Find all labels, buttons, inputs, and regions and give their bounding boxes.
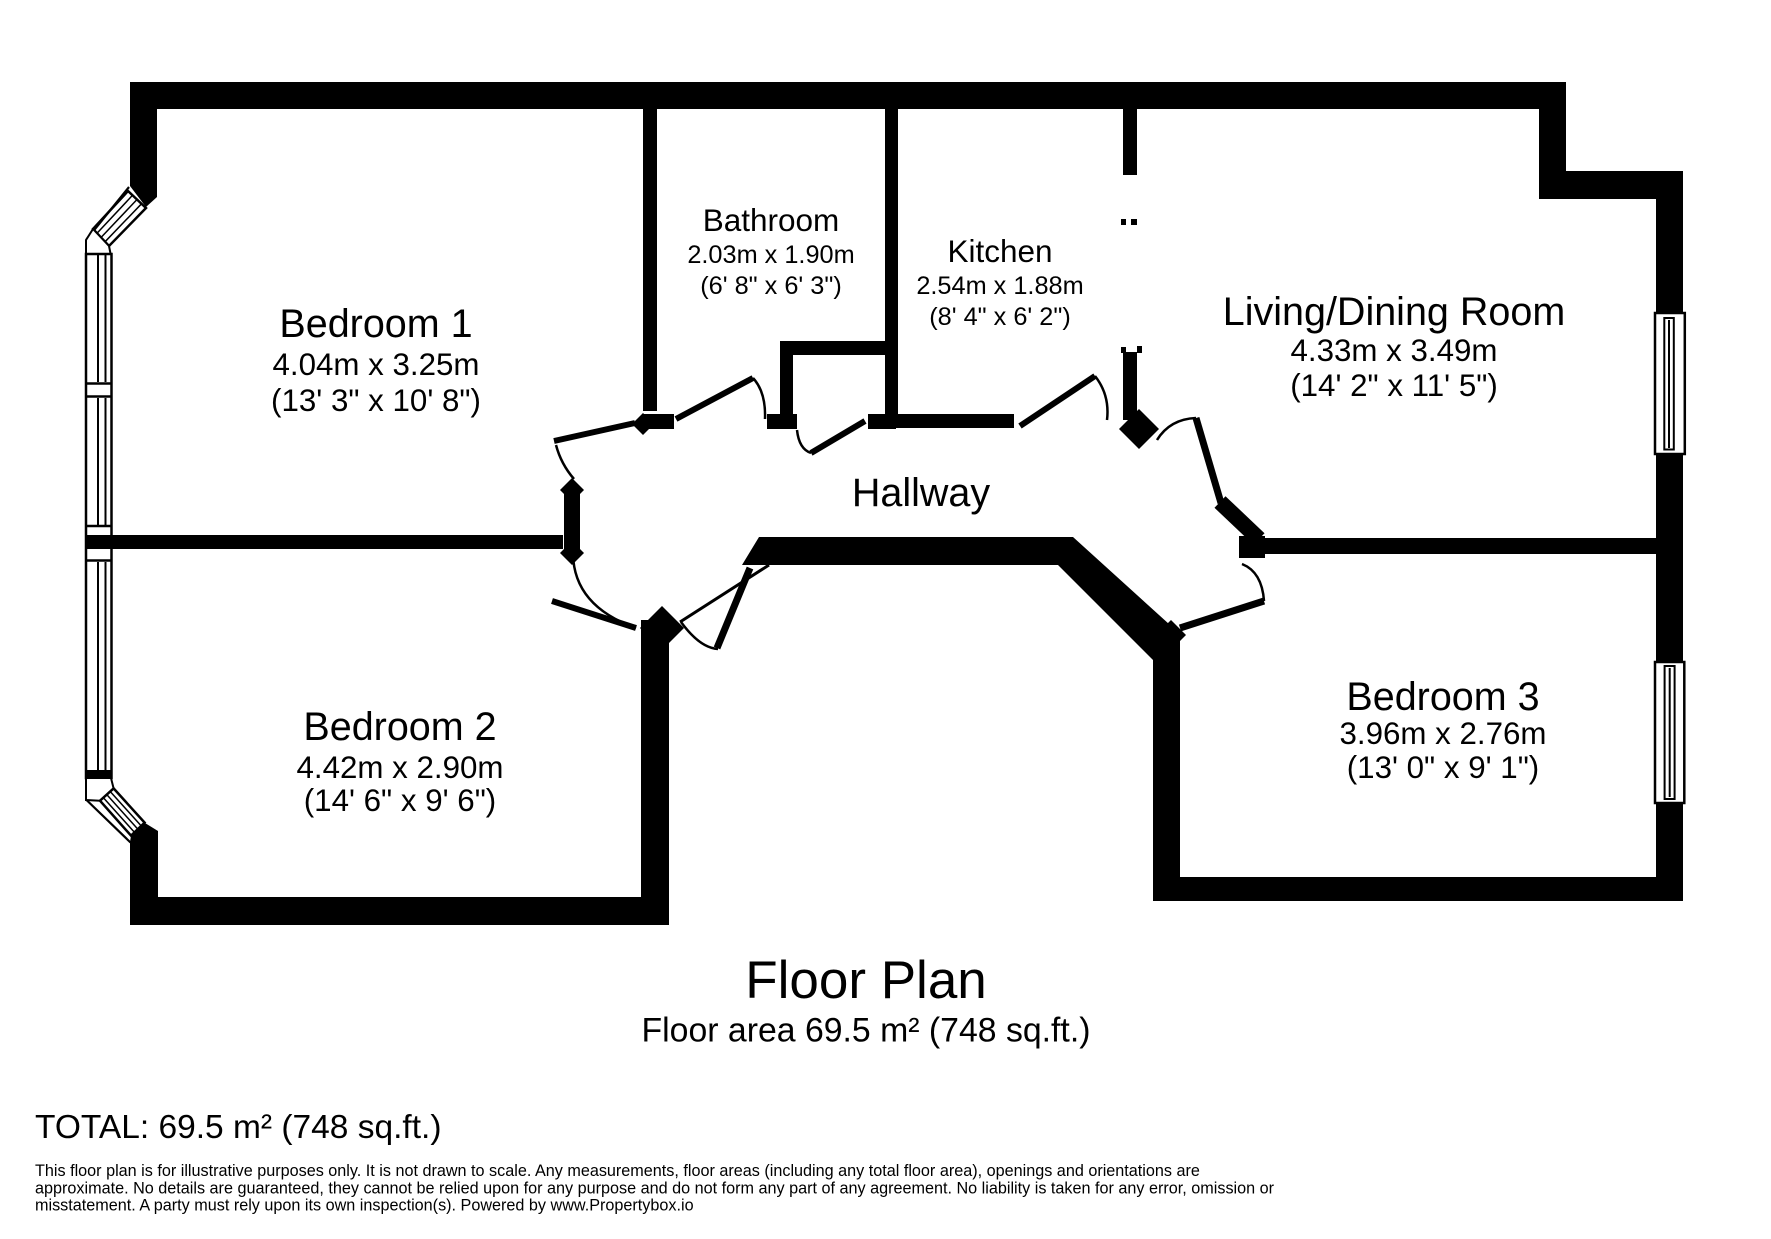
svg-text:4.42m x 2.90m: 4.42m x 2.90m <box>296 750 503 785</box>
svg-text:(14' 6" x 9' 6"): (14' 6" x 9' 6") <box>304 783 496 818</box>
svg-text:(13' 0" x 9' 1"): (13' 0" x 9' 1") <box>1347 750 1539 785</box>
svg-text:2.54m x 1.88m: 2.54m x 1.88m <box>916 272 1083 300</box>
svg-text:Hallway: Hallway <box>852 471 991 515</box>
svg-text:TOTAL: 69.5 m² (748 sq.ft.): TOTAL: 69.5 m² (748 sq.ft.) <box>35 1109 441 1146</box>
svg-text:(8' 4" x 6' 2"): (8' 4" x 6' 2") <box>929 303 1071 331</box>
svg-text:Floor area 69.5 m² (748 sq.ft.: Floor area 69.5 m² (748 sq.ft.) <box>642 1012 1091 1050</box>
svg-text:Bedroom 2: Bedroom 2 <box>303 705 496 749</box>
svg-text:Kitchen: Kitchen <box>947 233 1052 269</box>
svg-text:4.33m x 3.49m: 4.33m x 3.49m <box>1290 333 1497 368</box>
svg-text:2.03m x 1.90m: 2.03m x 1.90m <box>687 241 854 269</box>
svg-text:(6' 8" x 6' 3"): (6' 8" x 6' 3") <box>700 272 842 300</box>
svg-text:Floor Plan: Floor Plan <box>745 951 987 1010</box>
svg-text:Bedroom 1: Bedroom 1 <box>279 302 472 346</box>
svg-text:Bathroom: Bathroom <box>703 202 840 238</box>
svg-text:(13' 3" x 10' 8"): (13' 3" x 10' 8") <box>271 383 481 418</box>
svg-text:Bedroom 3: Bedroom 3 <box>1346 675 1539 719</box>
svg-text:approximate. No details are gu: approximate. No details are guaranteed, … <box>35 1179 1275 1197</box>
svg-text:Living/Dining Room: Living/Dining Room <box>1223 290 1566 334</box>
svg-text:4.04m x 3.25m: 4.04m x 3.25m <box>272 347 479 382</box>
svg-text:(14' 2" x 11' 5"): (14' 2" x 11' 5") <box>1290 368 1498 403</box>
svg-text:3.96m x 2.76m: 3.96m x 2.76m <box>1339 716 1546 751</box>
svg-text:This floor plan is for illustr: This floor plan is for illustrative purp… <box>35 1162 1200 1180</box>
svg-text:misstatement. A party must rel: misstatement. A party must rely upon its… <box>35 1197 694 1215</box>
